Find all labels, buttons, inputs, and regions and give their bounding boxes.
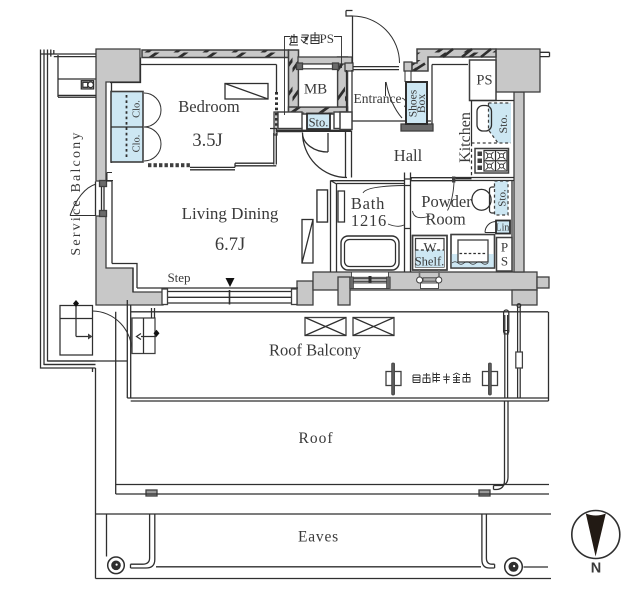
svg-text:Service Balcony: Service Balcony <box>69 130 84 255</box>
svg-text:Shelf.: Shelf. <box>415 255 445 269</box>
svg-text:1216: 1216 <box>351 211 387 230</box>
svg-text:Roof: Roof <box>299 430 334 447</box>
svg-text:MB: MB <box>304 82 327 98</box>
svg-text:PS: PS <box>320 31 334 46</box>
svg-text:3.5J: 3.5J <box>192 131 222 151</box>
svg-text:Hall: Hall <box>394 146 423 165</box>
svg-text:Powder: Powder <box>421 192 472 211</box>
svg-text:Roof Balcony: Roof Balcony <box>269 341 362 360</box>
svg-text:S: S <box>501 254 508 269</box>
svg-text:Box: Box <box>416 94 428 113</box>
svg-text:Clo.: Clo. <box>132 135 143 153</box>
svg-text:Sto.: Sto. <box>496 114 510 133</box>
svg-text:Entrance: Entrance <box>354 91 402 106</box>
svg-text:6.7J: 6.7J <box>215 235 245 255</box>
svg-text:Sto.: Sto. <box>309 116 329 130</box>
svg-text:Room: Room <box>425 210 466 229</box>
svg-text:Bedroom: Bedroom <box>178 97 240 116</box>
svg-text:Eaves: Eaves <box>298 529 339 546</box>
svg-text:Living Dining: Living Dining <box>182 204 279 223</box>
svg-text:Clo.: Clo. <box>132 100 143 118</box>
svg-text:N: N <box>591 561 601 577</box>
svg-text:Step: Step <box>167 270 190 285</box>
svg-text:Kitchen: Kitchen <box>457 112 474 163</box>
svg-text:P: P <box>501 240 508 255</box>
svg-text:Lin: Lin <box>496 223 510 234</box>
svg-text:PS: PS <box>476 73 492 89</box>
svg-text:Sto.: Sto. <box>497 189 509 207</box>
